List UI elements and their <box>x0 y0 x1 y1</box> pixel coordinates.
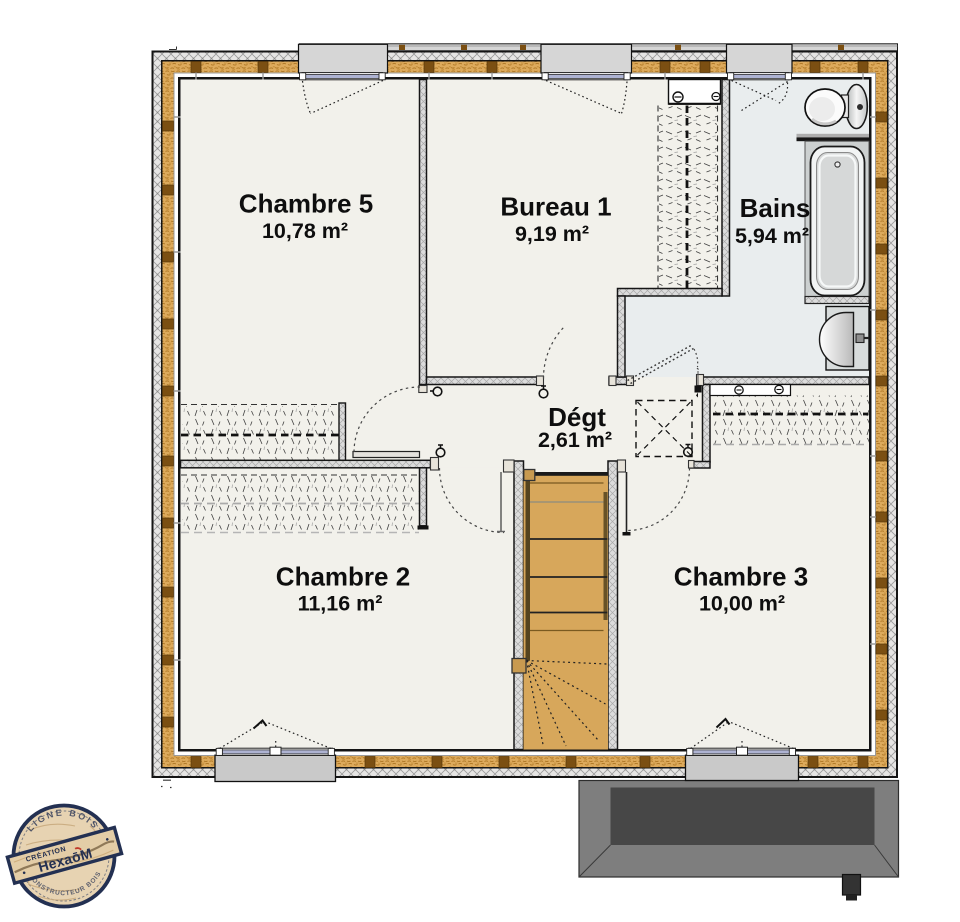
svg-text:Bains: Bains <box>740 193 811 223</box>
svg-text:2,61 m²: 2,61 m² <box>538 428 612 452</box>
svg-text:11,16 m²: 11,16 m² <box>298 592 383 616</box>
svg-text:10,00 m²: 10,00 m² <box>699 592 785 616</box>
svg-text:Chambre 2: Chambre 2 <box>276 562 410 592</box>
svg-text:10,78 m²: 10,78 m² <box>262 219 348 243</box>
svg-text:Bureau 1: Bureau 1 <box>500 192 611 222</box>
svg-text:Chambre 3: Chambre 3 <box>674 562 808 592</box>
svg-text:Chambre 5: Chambre 5 <box>239 189 373 219</box>
svg-text:5,94 m²: 5,94 m² <box>735 224 809 248</box>
svg-text:9,19 m²: 9,19 m² <box>515 222 589 246</box>
